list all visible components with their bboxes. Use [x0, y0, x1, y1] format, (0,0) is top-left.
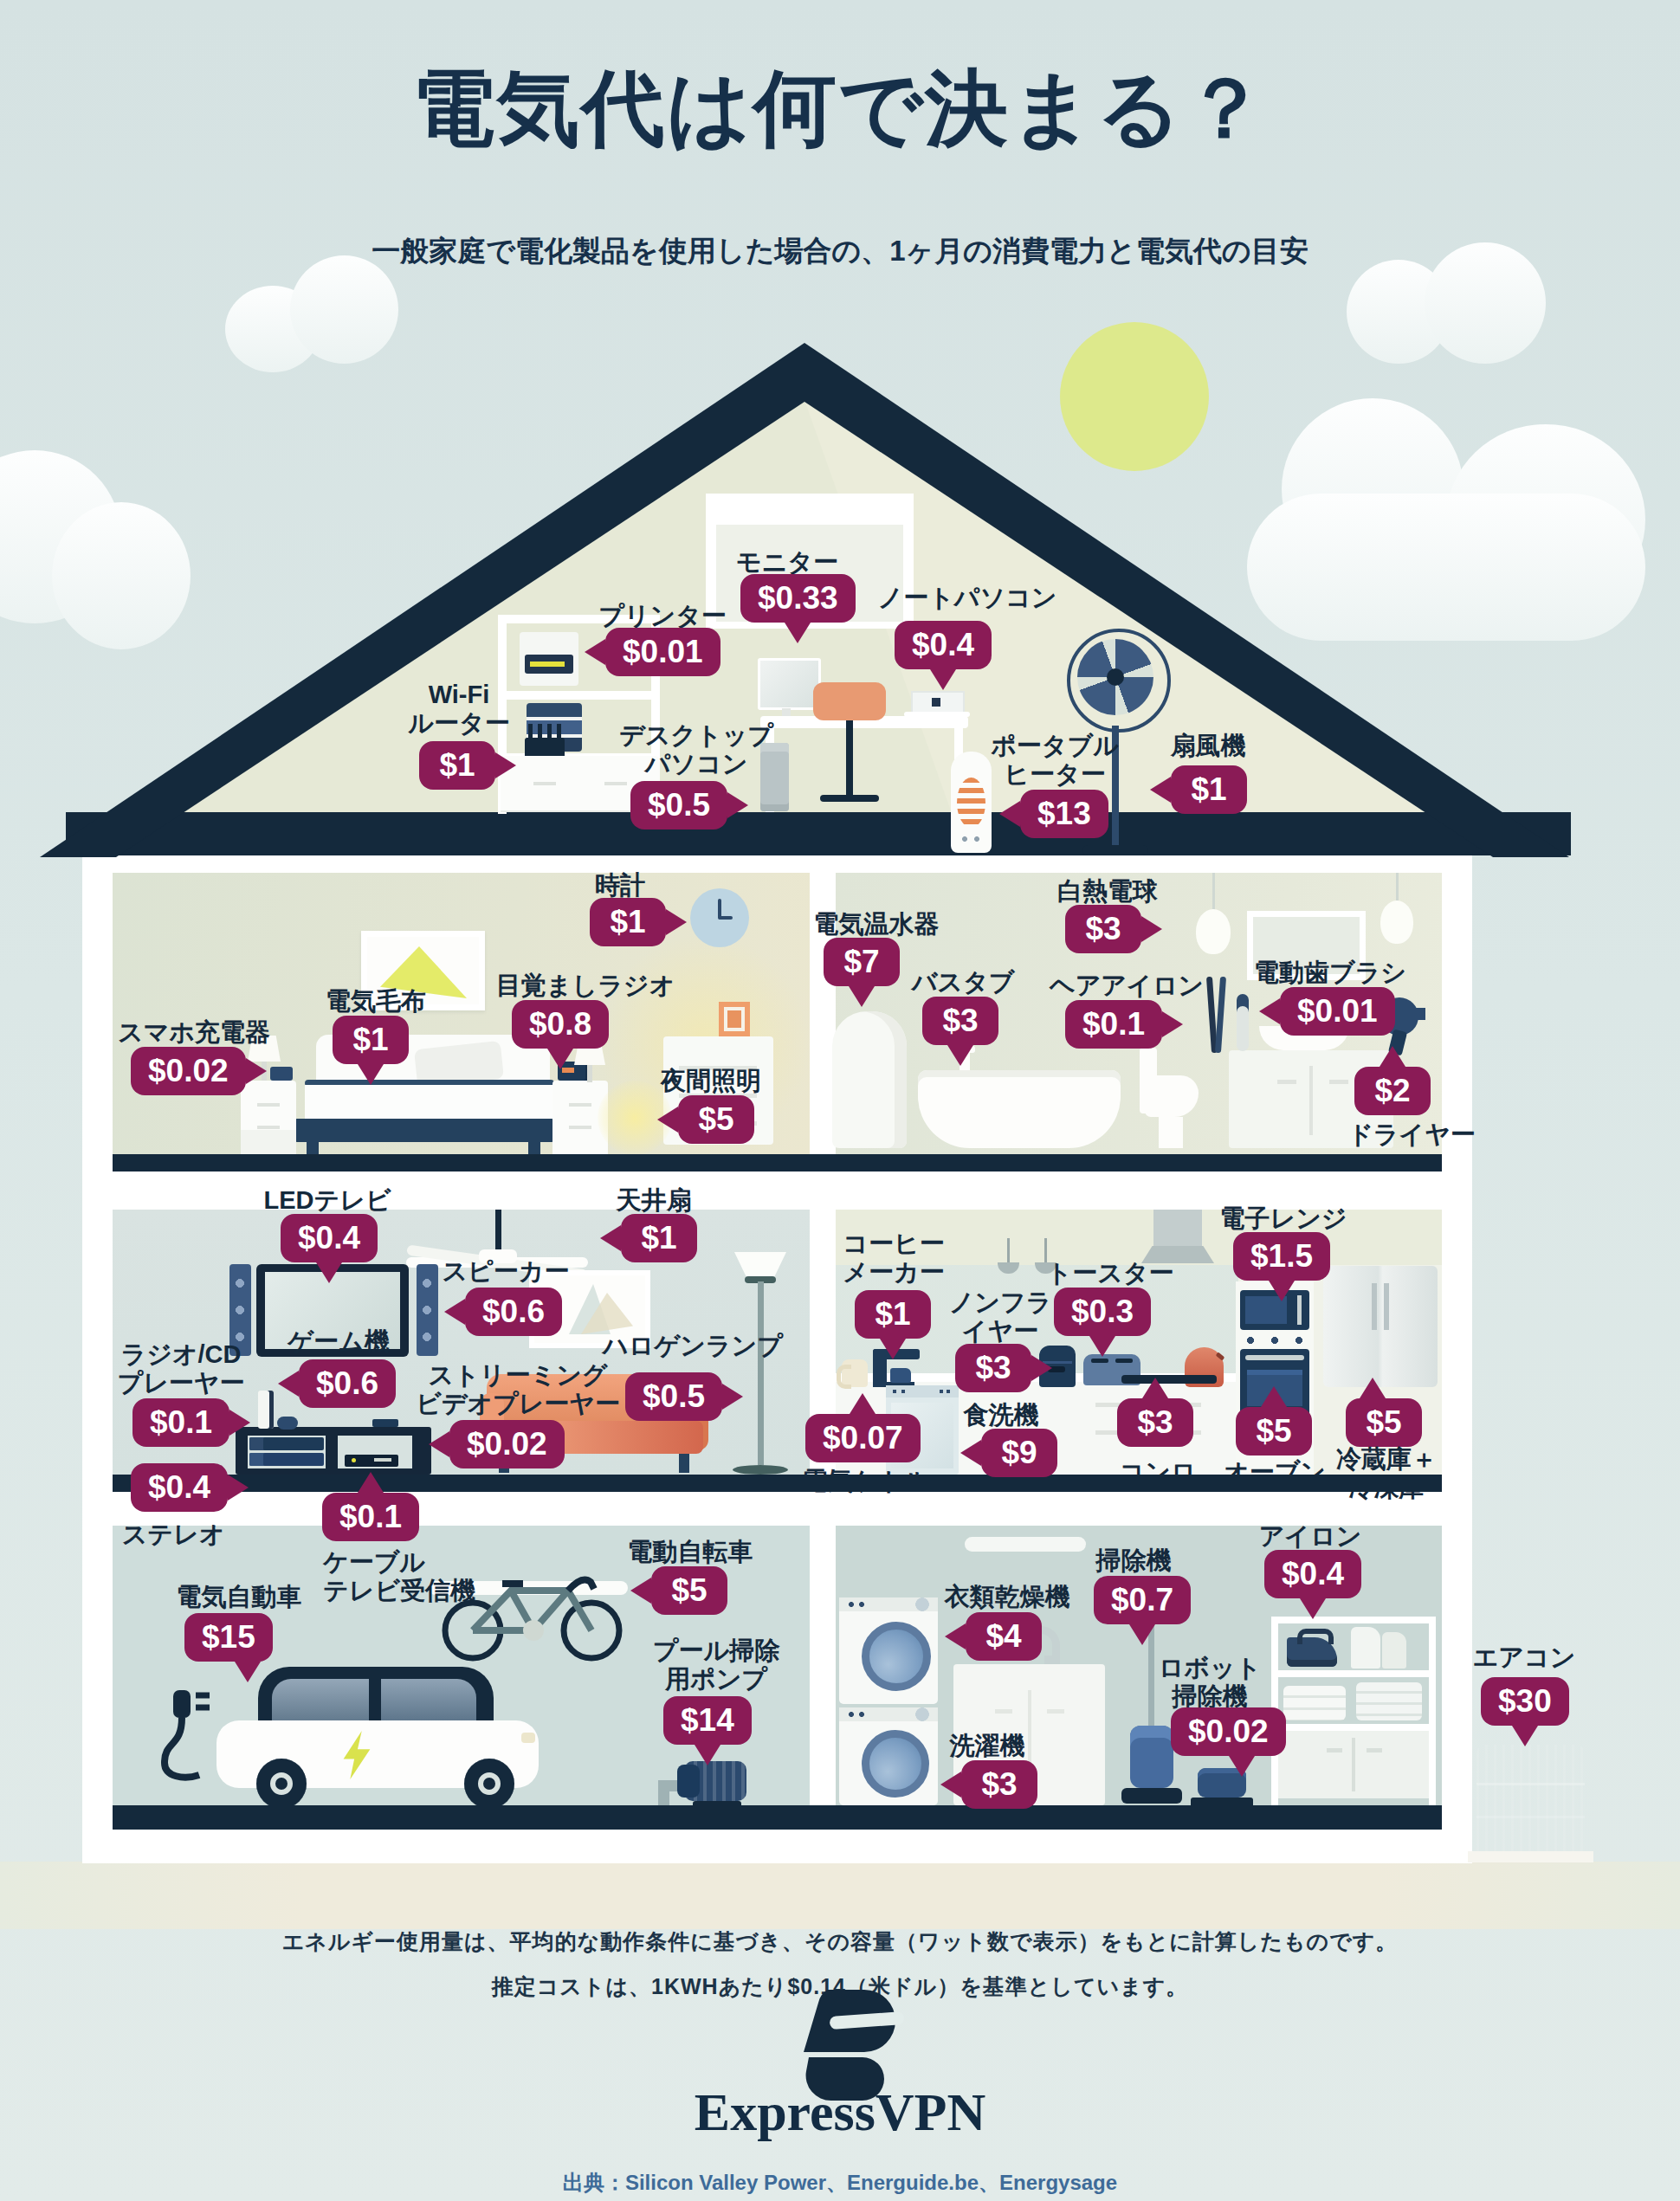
stereo-receiver — [249, 1453, 324, 1466]
label-electric-kettle: 電気ケトル — [802, 1467, 929, 1495]
label-laptop: ノートパソコン — [877, 584, 1056, 612]
oven-handle — [1245, 1355, 1304, 1360]
label-wifi-router: Wi-Fi ルーター — [408, 681, 509, 738]
heater-buttons — [961, 836, 980, 842]
label-fridge: 冷蔵庫＋ 冷凍庫 — [1336, 1445, 1437, 1502]
fridge-handle — [1372, 1283, 1377, 1330]
price-badge-hair-iron: $0.1 — [1065, 1000, 1162, 1049]
bed-duvet — [305, 1085, 554, 1120]
price-text: $1 — [352, 1022, 388, 1058]
ac-condenser — [1476, 1745, 1585, 1853]
label-stove: コンロ — [1119, 1458, 1196, 1487]
price-text: $15 — [202, 1619, 255, 1656]
price-badge-water-heater: $7 — [824, 938, 900, 986]
label-clothes-dryer: 衣類乾燥機 — [945, 1583, 1070, 1611]
floor-strip-2f — [113, 1154, 1442, 1171]
toaster-slot — [1091, 1359, 1108, 1363]
fridge-freezer — [1323, 1266, 1438, 1387]
price-badge-streaming-player: $0.02 — [449, 1420, 565, 1468]
label-alarm-radio: 目覚ましラジオ — [496, 971, 675, 1000]
speaker-right — [417, 1264, 438, 1356]
bed-leg — [307, 1142, 319, 1154]
price-badge-speaker: $0.6 — [465, 1288, 562, 1336]
price-badge-desktop-pc: $0.5 — [630, 781, 727, 829]
label-led-tv: LEDテレビ — [263, 1186, 391, 1215]
toilet-base — [1159, 1117, 1183, 1148]
price-badge-incandescent-bulb: $3 — [1065, 905, 1141, 953]
bed-base — [294, 1119, 554, 1142]
ground — [0, 1862, 1680, 1929]
clothes-dryer-machine — [839, 1597, 938, 1704]
price-text: $0.1 — [1082, 1006, 1145, 1042]
laptop-base — [904, 712, 970, 717]
label-hair-dryer: ドライヤー — [1347, 1120, 1476, 1149]
price-badge-night-light: $5 — [678, 1095, 754, 1144]
pendant-bulb — [1196, 873, 1231, 954]
price-text: $7 — [843, 944, 879, 980]
price-badge-robot-vacuum: $0.02 — [1171, 1707, 1286, 1756]
kettle-handle — [837, 1365, 851, 1389]
price-badge-wifi-router: $1 — [419, 741, 495, 790]
price-text: $1 — [1191, 771, 1226, 808]
price-badge-radio-cd-player: $0.1 — [132, 1398, 229, 1447]
label-printer: プリンター — [598, 602, 727, 630]
label-iron: アイロン — [1259, 1522, 1362, 1551]
label-monitor: モニター — [736, 548, 838, 577]
cable-box — [345, 1455, 398, 1467]
price-badge-laptop: $0.4 — [895, 621, 992, 669]
price-badge-electric-fan: $1 — [1171, 765, 1247, 814]
price-badge-portable-heater: $13 — [1020, 790, 1108, 838]
price-text: $1 — [641, 1220, 676, 1256]
cooktop — [1121, 1375, 1217, 1384]
label-portable-heater: ポータブル ヒーター — [991, 732, 1119, 789]
chair-base — [820, 795, 879, 802]
price-text: $9 — [1001, 1435, 1037, 1471]
price-text: $5 — [1366, 1404, 1401, 1441]
label-stereo: ステレオ — [122, 1520, 225, 1549]
footer-note-1: エネルギー使用量は、平均的な動作条件に基づき、その容量（ワット数で表示）をもとに… — [282, 1927, 1399, 1956]
label-incandescent-bulb: 白熱電球 — [1057, 877, 1158, 906]
towel-stack — [1283, 1686, 1346, 1720]
price-text: $0.33 — [758, 580, 838, 616]
price-text: $5 — [671, 1572, 707, 1609]
price-text: $5 — [1256, 1413, 1291, 1449]
price-badge-stereo: $0.4 — [131, 1463, 228, 1512]
electric-toothbrush — [1237, 994, 1249, 1051]
printer — [520, 632, 578, 686]
toilet — [1140, 1048, 1199, 1148]
lamp-pole — [758, 1281, 764, 1465]
label-speaker: スピーカー — [442, 1257, 569, 1286]
floor-strip-gf — [113, 1805, 1442, 1830]
ac-base — [1468, 1851, 1593, 1862]
price-text: $0.4 — [298, 1220, 360, 1256]
label-cable-tv: ケーブル テレビ受信機 — [323, 1548, 475, 1605]
oven-controls — [1240, 1335, 1309, 1346]
router-antennas — [528, 724, 561, 738]
washing-machine — [839, 1707, 938, 1805]
monitor-stand — [782, 708, 791, 716]
price-text: $0.07 — [823, 1420, 903, 1456]
label-bathtub: バスタブ — [912, 968, 1015, 997]
price-text: $3 — [975, 1350, 1011, 1386]
price-text: $0.02 — [1188, 1714, 1269, 1750]
microwave-handle — [1297, 1295, 1302, 1325]
infographic-poster: 電気代は何で決まる？ 一般家庭で電化製品を使用した場合の、1ヶ月の消費電力と電気… — [0, 0, 1680, 2201]
clock-hand-hour — [719, 916, 733, 920]
fan-rod — [495, 1210, 501, 1255]
price-text: $0.7 — [1111, 1582, 1173, 1618]
label-desktop-pc: デスクトップ パソコン — [619, 721, 773, 778]
electric-kettle — [837, 1358, 873, 1387]
price-badge-alarm-radio: $0.8 — [512, 1000, 609, 1049]
label-electric-fan: 扇風機 — [1171, 732, 1246, 760]
label-phone-charger: スマホ充電器 — [118, 1018, 270, 1047]
label-washing-machine: 洗濯機 — [950, 1732, 1025, 1760]
fridge-handle — [1384, 1283, 1389, 1330]
wall-clock — [690, 888, 749, 947]
dryer-nozzle — [1413, 1008, 1425, 1020]
hair-iron — [1207, 977, 1226, 1056]
price-text: $1 — [610, 904, 645, 940]
price-badge-fridge: $5 — [1346, 1398, 1422, 1447]
detergent-bottle — [1351, 1627, 1380, 1668]
label-electric-car: 電気自動車 — [177, 1583, 302, 1611]
price-badge-vacuum: $0.7 — [1094, 1576, 1191, 1624]
fan-base — [1082, 845, 1148, 855]
price-badge-monitor: $0.33 — [740, 574, 856, 623]
laptop — [904, 691, 970, 717]
shelf-cabinet — [1278, 1731, 1429, 1798]
label-electric-bike: 電動自転車 — [628, 1538, 753, 1566]
price-text: $0.01 — [1297, 993, 1378, 1029]
price-text: $0.02 — [148, 1053, 229, 1089]
washer-door — [862, 1730, 929, 1798]
pump-cap — [677, 1765, 700, 1798]
price-text: $0.1 — [150, 1404, 212, 1441]
portable-heater — [951, 752, 992, 853]
dresser-photo-frame — [719, 1002, 750, 1036]
drawer-handle — [533, 782, 556, 785]
price-text: $0.1 — [339, 1499, 402, 1535]
price-badge-washing-machine: $3 — [961, 1760, 1037, 1809]
price-badge-cable-tv: $0.1 — [322, 1493, 419, 1541]
price-badge-electric-blanket: $1 — [333, 1016, 409, 1064]
label-clock: 時計 — [595, 871, 645, 900]
price-text: $3 — [1137, 1404, 1173, 1441]
price-badge-air-conditioner: $30 — [1481, 1677, 1569, 1726]
hood-chimney — [1153, 1210, 1202, 1246]
game-controller — [277, 1417, 298, 1430]
dryer-door — [862, 1622, 931, 1691]
price-badge-dishwasher: $9 — [981, 1429, 1057, 1477]
price-text: $4 — [985, 1618, 1021, 1655]
drawer-handle — [604, 782, 627, 785]
attic-floor-band — [66, 812, 1571, 855]
toaster-slot — [1115, 1359, 1133, 1363]
price-badge-microwave: $1.5 — [1233, 1232, 1330, 1281]
pendant-light — [998, 1238, 1020, 1275]
label-streaming-player: ストリーミング ビデオプレーヤー — [416, 1361, 620, 1418]
label-coffee-maker: コーヒー メーカー — [843, 1230, 944, 1287]
label-microwave: 電子レンジ — [1219, 1204, 1347, 1233]
label-electric-blanket: 電気毛布 — [326, 987, 426, 1016]
lamp-base — [733, 1465, 788, 1475]
label-air-conditioner: エアコン — [1473, 1643, 1576, 1672]
price-badge-led-tv: $0.4 — [281, 1214, 378, 1262]
nightstand-left — [241, 1081, 296, 1154]
price-text: $0.5 — [648, 787, 710, 823]
bulb-glass — [1380, 900, 1413, 944]
price-badge-electric-bike: $5 — [651, 1566, 727, 1615]
price-text: $0.01 — [623, 634, 703, 670]
page-title: 電気代は何で決まる？ — [412, 54, 1269, 166]
price-badge-electric-kettle: $0.07 — [805, 1414, 921, 1462]
fan-hub — [1107, 668, 1124, 686]
price-text: $3 — [1085, 911, 1121, 947]
label-game-console: ゲーム機 — [288, 1327, 389, 1356]
label-air-fryer: ノンフラ イヤー — [949, 1288, 1052, 1346]
label-toaster: トースター — [1046, 1259, 1173, 1288]
divider-wall-gf — [810, 1526, 836, 1805]
iron-arm — [1215, 977, 1226, 1053]
pendant-shade — [998, 1262, 1019, 1274]
price-text: $3 — [981, 1766, 1017, 1803]
price-badge-bathtub: $3 — [922, 997, 998, 1045]
price-text: $0.02 — [467, 1426, 547, 1462]
price-text: $0.5 — [643, 1378, 705, 1415]
price-badge-stove: $3 — [1117, 1398, 1193, 1447]
printer-slot — [530, 662, 565, 667]
price-text: $1.5 — [1250, 1238, 1313, 1275]
price-text: $2 — [1374, 1073, 1410, 1109]
price-badge-ceiling-fan: $1 — [621, 1214, 697, 1262]
label-dishwasher: 食洗機 — [964, 1401, 1039, 1430]
price-badge-coffee-maker: $1 — [855, 1290, 931, 1339]
price-badge-air-fryer: $3 — [955, 1344, 1031, 1392]
page-subtitle: 一般家庭で電化製品を使用した場合の、1ヶ月の消費電力と電気代の目安 — [372, 232, 1308, 271]
price-badge-game-console: $0.6 — [299, 1359, 396, 1408]
price-text: $0.6 — [316, 1365, 378, 1402]
streaming-box — [372, 1419, 398, 1427]
dishwasher-panel — [886, 1385, 959, 1397]
pendant-cord — [1007, 1238, 1010, 1262]
stereo-receiver — [249, 1437, 324, 1450]
console-tower — [258, 1391, 274, 1429]
tv-stand — [236, 1427, 431, 1475]
chair-pole — [846, 720, 853, 795]
car-wheel — [256, 1759, 307, 1809]
laundry-shelf — [1271, 1617, 1436, 1805]
price-badge-halogen-lamp: $0.5 — [625, 1372, 722, 1421]
label-pool-pump: プール掃除 用ポンプ — [653, 1636, 779, 1694]
phone-charger-dock — [270, 1067, 293, 1081]
price-badge-oven: $5 — [1236, 1407, 1312, 1455]
car-wheel — [464, 1759, 514, 1809]
price-text: $0.4 — [148, 1469, 210, 1506]
price-text: $0.8 — [529, 1006, 591, 1042]
price-text: $0.6 — [482, 1294, 545, 1330]
lamp-pole — [587, 1065, 592, 1082]
bed-leg — [528, 1142, 540, 1154]
price-badge-phone-charger: $0.02 — [131, 1047, 246, 1095]
label-night-light: 夜間照明 — [661, 1067, 761, 1095]
laundry-ceiling-light — [965, 1537, 1086, 1552]
car-headlight — [521, 1733, 535, 1743]
bulb-glass — [1196, 909, 1231, 954]
laptop-key — [932, 698, 940, 707]
price-text: $0.4 — [912, 627, 974, 663]
vacuum-base — [1121, 1788, 1182, 1804]
machine-controls — [839, 1707, 938, 1721]
toilet-bowl — [1145, 1075, 1199, 1117]
price-badge-electric-car: $15 — [184, 1613, 273, 1662]
pool-pump — [658, 1758, 760, 1811]
coffee-carafe — [890, 1368, 911, 1383]
price-badge-printer: $0.01 — [605, 628, 720, 676]
label-water-heater: 電気温水器 — [814, 910, 940, 939]
price-badge-hair-dryer: $2 — [1354, 1067, 1431, 1115]
price-badge-pool-pump: $14 — [663, 1696, 752, 1745]
towel-stack — [1356, 1682, 1422, 1720]
heater-coils — [957, 778, 985, 828]
price-badge-electric-toothbrush: $0.01 — [1280, 987, 1395, 1036]
charging-plug — [158, 1687, 218, 1786]
price-text: $13 — [1037, 796, 1091, 832]
price-text: $0.3 — [1071, 1294, 1134, 1330]
iron-handle — [1297, 1629, 1334, 1644]
price-badge-iron: $0.4 — [1264, 1550, 1361, 1598]
cable-box-light — [352, 1458, 356, 1462]
shelf-iron — [1287, 1637, 1337, 1667]
water-heater-tank — [832, 1011, 907, 1148]
tub-body — [918, 1070, 1121, 1148]
bulb-cord — [1212, 873, 1215, 909]
label-ceiling-fan: 天井扇 — [617, 1186, 692, 1215]
source-credit: 出典：Silicon Valley Power、Energuide.be、Ene… — [563, 2169, 1117, 2197]
price-text: $1 — [875, 1296, 910, 1333]
label-radio-cd-player: ラジオ/CD プレーヤー — [117, 1340, 244, 1397]
price-text: $1 — [439, 747, 475, 784]
detergent-bottle — [1382, 1632, 1406, 1668]
price-text: $3 — [942, 1003, 978, 1039]
range-hood — [1141, 1210, 1214, 1263]
price-text: $5 — [698, 1101, 733, 1138]
cable-box-slot — [374, 1458, 391, 1462]
pendant-bulb — [1380, 873, 1413, 944]
chair-seat — [813, 682, 886, 720]
price-badge-toaster: $0.3 — [1054, 1288, 1151, 1336]
label-robot-vacuum: ロボット 掃除機 — [1159, 1654, 1262, 1711]
sofa-leg — [679, 1454, 689, 1473]
vacuum-body — [1130, 1726, 1173, 1788]
label-vacuum: 掃除機 — [1096, 1546, 1172, 1575]
label-oven: オーブン — [1224, 1458, 1326, 1487]
lamp-bowl — [734, 1252, 786, 1278]
halogen-floor-lamp — [733, 1252, 790, 1475]
price-badge-clothes-dryer: $4 — [966, 1612, 1042, 1661]
bulb-cord — [1396, 873, 1399, 900]
label-hair-iron: ヘアアイロン — [1050, 971, 1204, 1000]
price-text: $14 — [681, 1702, 734, 1739]
price-badge-clock: $1 — [590, 898, 666, 946]
office-chair — [804, 682, 895, 812]
machine-controls — [839, 1597, 938, 1611]
expressvpn-wordmark: ExpressVPN — [695, 2082, 985, 2143]
price-text: $30 — [1498, 1683, 1552, 1720]
price-text: $0.4 — [1282, 1556, 1344, 1592]
label-electric-toothbrush: 電動歯ブラシ — [1254, 958, 1406, 987]
electric-car — [216, 1667, 541, 1816]
label-halogen-lamp: ハロゲンランプ — [603, 1332, 783, 1360]
